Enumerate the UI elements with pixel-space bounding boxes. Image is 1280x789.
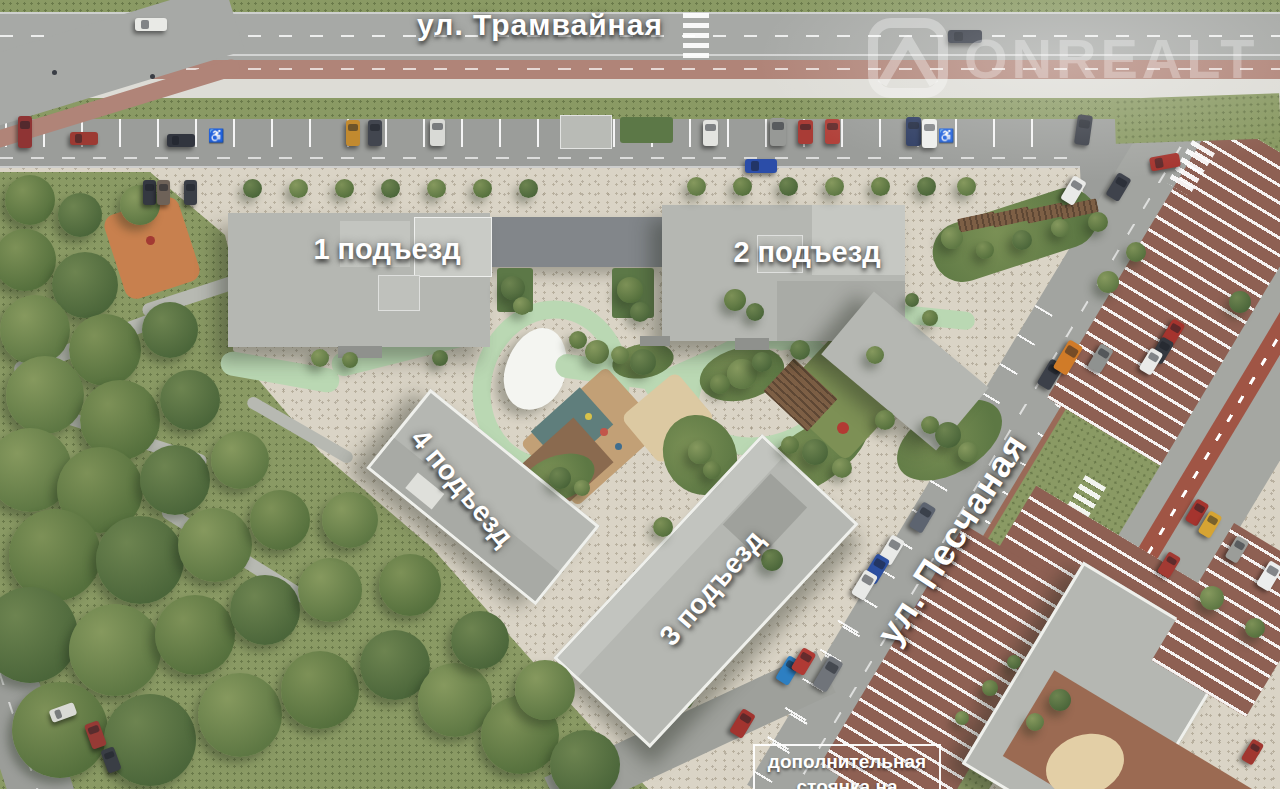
car xyxy=(49,702,78,723)
car-windshield xyxy=(827,123,838,130)
car xyxy=(1074,114,1093,146)
watermark-brand: ONREALT xyxy=(964,26,1259,91)
car xyxy=(18,116,32,148)
car-windshield xyxy=(1079,119,1090,128)
car-windshield xyxy=(1234,540,1246,551)
car-windshield xyxy=(172,136,179,145)
car xyxy=(157,180,170,205)
car xyxy=(70,132,98,145)
car-windshield xyxy=(348,124,358,131)
onrealt-house-icon xyxy=(866,18,950,98)
car-windshield xyxy=(800,652,812,663)
cars-layer xyxy=(0,0,1280,789)
car xyxy=(1241,738,1265,765)
car-windshield xyxy=(1148,352,1160,363)
car-windshield xyxy=(772,122,783,129)
car xyxy=(1087,343,1114,374)
car-windshield xyxy=(1166,555,1178,565)
watermark: ONREALT xyxy=(866,18,1259,98)
car-windshield xyxy=(1194,503,1206,514)
car xyxy=(143,180,156,205)
car xyxy=(184,180,197,205)
car-windshield xyxy=(800,124,811,130)
car-windshield xyxy=(739,713,752,724)
car xyxy=(798,120,813,144)
car xyxy=(745,159,777,173)
car-windshield xyxy=(873,558,886,570)
car xyxy=(346,120,360,146)
car-windshield xyxy=(705,124,716,131)
car-windshield xyxy=(432,123,443,130)
car xyxy=(825,119,840,144)
car-windshield xyxy=(141,20,149,29)
car-windshield xyxy=(888,539,901,551)
car-windshield xyxy=(186,184,195,191)
car xyxy=(1053,339,1084,376)
street-label-tramvaynaya: ул. Трамвайная xyxy=(400,8,680,42)
disabled-parking-icon: ♿ xyxy=(208,128,224,143)
car xyxy=(922,119,937,148)
car xyxy=(1149,153,1181,172)
car-windshield xyxy=(88,725,100,735)
car-windshield xyxy=(1159,341,1171,352)
car xyxy=(430,119,445,146)
car-windshield xyxy=(104,751,115,760)
car-windshield xyxy=(825,661,839,674)
car-windshield xyxy=(1155,157,1164,168)
disabled-parking-icon: ♿ xyxy=(938,128,954,143)
car-windshield xyxy=(1170,323,1182,334)
car xyxy=(851,569,878,601)
car-windshield xyxy=(370,124,380,131)
car-windshield xyxy=(1250,743,1261,753)
building-2-label: 2 подъезд xyxy=(712,236,902,269)
car-windshield xyxy=(54,709,63,720)
car-windshield xyxy=(145,184,154,191)
car-windshield xyxy=(908,122,919,130)
car xyxy=(135,18,167,31)
car xyxy=(1060,175,1087,206)
site-plan-map: ♿ ♿ ул. Трамвайная ул. Песчаная 1 подъез… xyxy=(0,0,1280,789)
car-windshield xyxy=(75,134,82,143)
car xyxy=(1157,551,1181,579)
car-windshield xyxy=(1266,565,1279,577)
car-windshield xyxy=(20,121,30,129)
building-1-label: 1 подъезд xyxy=(292,233,482,266)
car-windshield xyxy=(1065,345,1079,358)
car xyxy=(84,720,107,750)
car-windshield xyxy=(1070,180,1083,191)
car-windshield xyxy=(1207,515,1219,526)
car xyxy=(703,120,718,146)
car xyxy=(167,134,195,147)
car xyxy=(1256,560,1280,592)
car xyxy=(770,118,786,146)
car xyxy=(729,708,756,739)
car xyxy=(1105,172,1131,202)
car-windshield xyxy=(919,506,932,518)
car-windshield xyxy=(924,124,935,132)
car xyxy=(906,117,921,146)
extra-parking-callout: дополнительная стоянка на xyxy=(753,744,941,789)
extra-parking-line2: стоянка на xyxy=(755,774,939,789)
car-windshield xyxy=(751,161,759,171)
car xyxy=(1225,535,1250,564)
car xyxy=(812,655,843,692)
car xyxy=(100,746,121,773)
car-windshield xyxy=(1115,177,1127,188)
car xyxy=(368,120,382,146)
car-windshield xyxy=(1097,348,1110,359)
car-windshield xyxy=(861,574,874,586)
extra-parking-line1: дополнительная xyxy=(755,749,939,774)
car-windshield xyxy=(159,184,168,191)
